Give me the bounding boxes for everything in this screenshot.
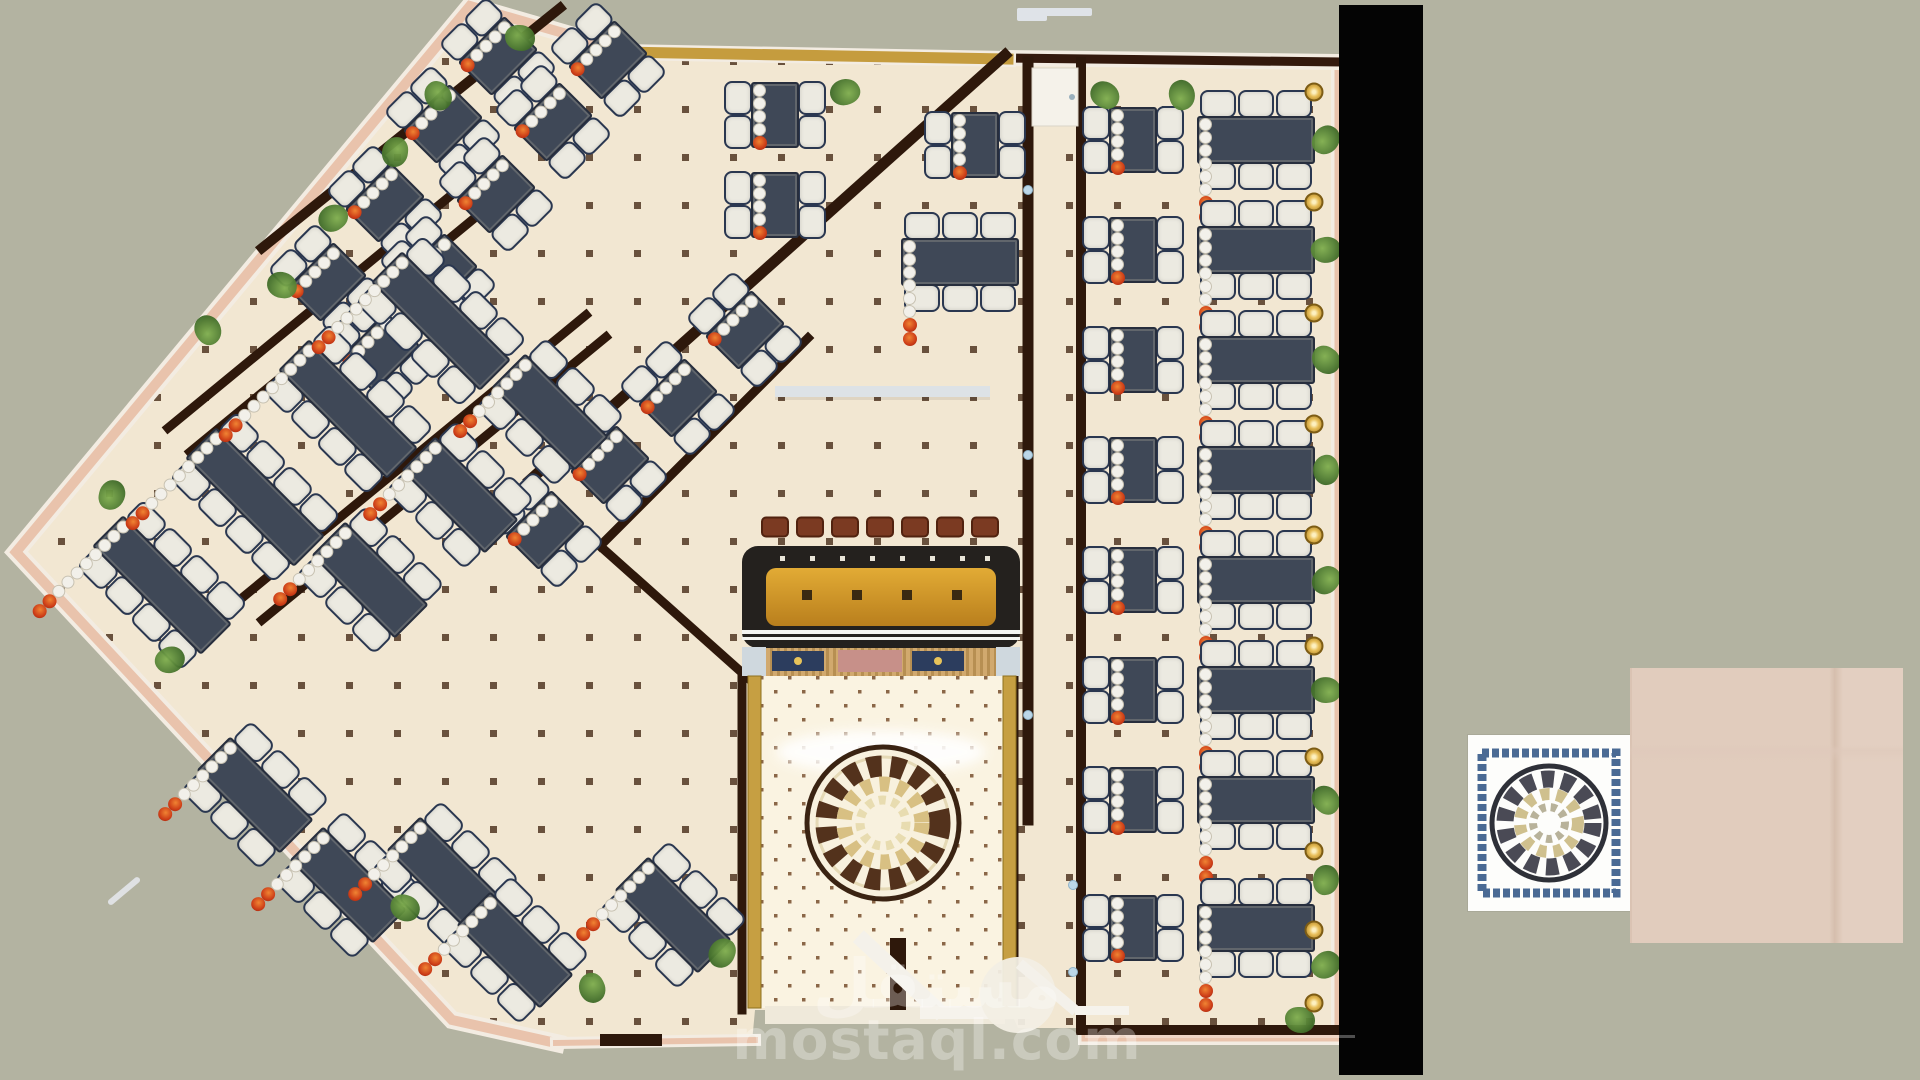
entrance-door-top	[1032, 68, 1078, 126]
buffet-planks	[775, 386, 990, 400]
floor	[16, 6, 1338, 1044]
floor-plan-render: مستقل mostaql.com	[0, 0, 1920, 1080]
stray-light-mark-top	[1017, 8, 1092, 16]
lobby-floor-medallion	[807, 747, 959, 899]
medallion-tile-sample	[1468, 735, 1630, 911]
wood-texture-sample	[1630, 668, 1903, 943]
entrance-lobby	[748, 676, 1016, 1024]
black-reference-panel	[1339, 5, 1423, 1075]
medallion-tile-art	[1468, 735, 1630, 911]
